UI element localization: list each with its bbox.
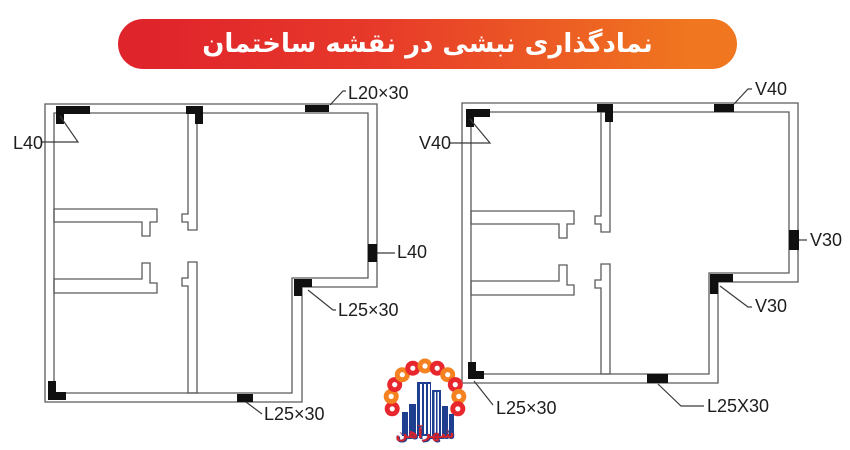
wall-angle-marker-top [305,105,329,112]
corner-angle-marker-bottom-left [48,381,66,400]
label-right-right-wall: V30 [810,231,842,250]
label-right-notch: V30 [755,297,787,316]
leader-line-top-label [330,91,346,105]
corner-angle-marker-notch [710,274,733,294]
corner-angle-marker-top-left [56,106,90,124]
leader-line-top-label [734,89,752,104]
wall-angle-marker-right [789,230,799,250]
left-plan-interior-wall-vertical-lower [182,262,197,393]
wall-angle-marker-bottom [237,394,253,402]
left-plan-markers [48,105,377,402]
right-plan-leaders [449,89,807,406]
right-plan-interior-wall-horizontal-lower [471,265,574,295]
left-plan-interior-wall-horizontal-upper [54,209,157,236]
label-right-bottom-left: L25×30 [496,399,557,418]
infographic-canvas: نمادگذاری نبشی در نقشه ساختمان [0,0,850,450]
left-plan-leaders [41,91,395,414]
label-left-bottom-wall: L25×30 [264,405,325,424]
label-right-top-left: V40 [419,134,451,153]
right-plan-markers [466,104,799,383]
leader-line-notch-label [720,286,752,307]
leader-line-bottom-left-label [474,381,493,405]
left-plan-interior-wall-horizontal-lower [54,263,157,293]
right-plan-interior-wall-horizontal-upper [471,211,574,238]
right-plan-interior-wall-vertical-lower [595,264,610,374]
label-left-right-wall: L40 [397,243,427,262]
leader-line-bottom-label [658,384,704,406]
label-right-top-wall: V40 [755,80,787,99]
wall-angle-marker-right [368,244,377,262]
label-right-bottom-wall: L25X30 [707,397,769,416]
right-plan-interior-wall-vertical-upper [595,112,610,232]
label-left-notch: L25×30 [338,301,399,320]
wall-angle-marker-top [714,104,734,112]
label-left-top-wall: L20×30 [348,84,409,103]
left-plan-inner-wall [54,113,368,393]
left-plan [41,91,395,414]
leader-line-notch-label [308,290,336,310]
leader-line-bottom-label [246,402,262,414]
right-plan [449,89,807,406]
logo-wordmark: شهرآهن [385,426,465,442]
left-plan-outer-wall [45,104,377,402]
corner-angle-marker-top-left [466,109,490,127]
wall-angle-marker-bottom [647,374,668,383]
right-plan-outer-wall [462,103,798,383]
right-plan-inner-wall [471,112,789,374]
corner-angle-marker-wall-junction [597,104,613,122]
left-plan-interior-wall-vertical-upper [182,113,197,230]
label-left-top-left: L40 [13,134,43,153]
